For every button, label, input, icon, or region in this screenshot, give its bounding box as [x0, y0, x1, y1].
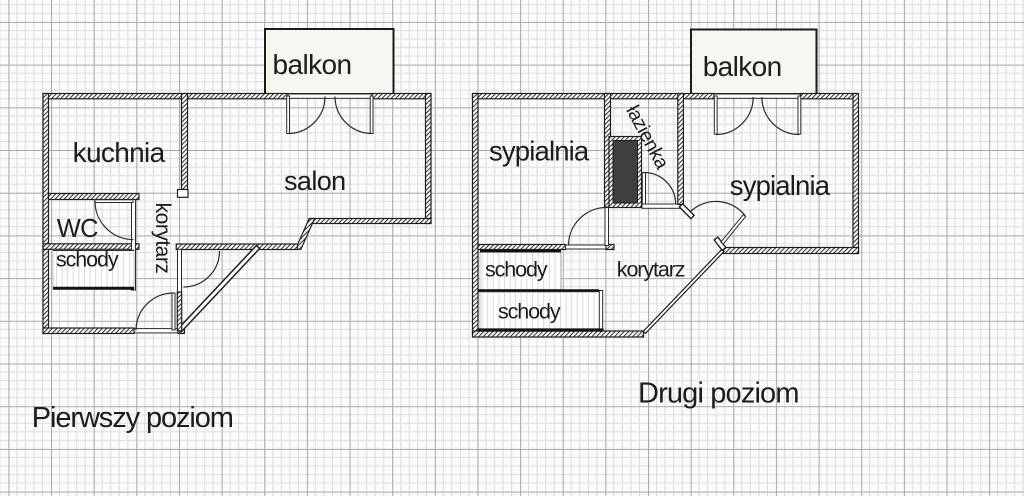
svg-text:balkon: balkon [703, 51, 782, 82]
svg-text:balkon: balkon [273, 49, 352, 80]
svg-text:Pierwszy poziom: Pierwszy poziom [32, 402, 233, 434]
svg-text:schody: schody [498, 300, 561, 324]
svg-text:WC: WC [57, 215, 98, 243]
svg-text:kuchnia: kuchnia [73, 137, 166, 168]
svg-text:korytarz: korytarz [151, 203, 174, 274]
svg-text:sypialnia: sypialnia [730, 170, 831, 201]
svg-text:sypialnia: sypialnia [489, 136, 590, 167]
svg-text:schody: schody [485, 258, 548, 282]
svg-text:Drugi poziom: Drugi poziom [638, 378, 799, 410]
svg-text:schody: schody [56, 248, 119, 272]
svg-text:salon: salon [284, 166, 346, 196]
svg-text:korytarz: korytarz [617, 258, 685, 282]
